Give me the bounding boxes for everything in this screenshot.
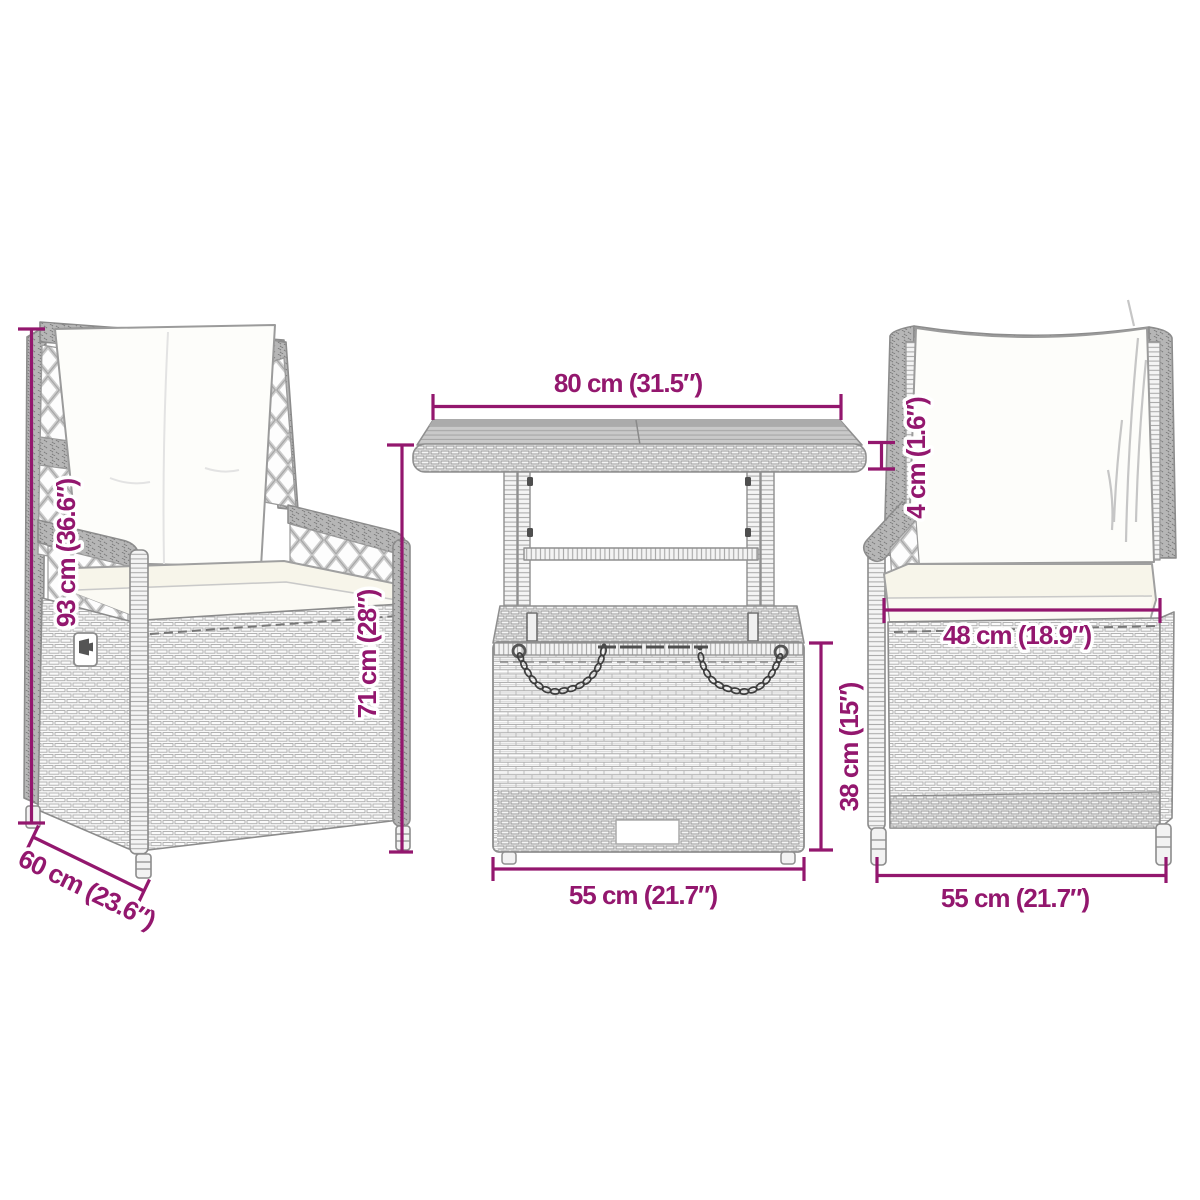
svg-text:48 cm (18.9″): 48 cm (18.9″) <box>943 620 1092 650</box>
svg-text:71 cm (28″): 71 cm (28″) <box>352 589 382 718</box>
svg-text:4 cm (1.6″): 4 cm (1.6″) <box>901 397 931 519</box>
svg-text:55 cm (21.7″): 55 cm (21.7″) <box>941 883 1090 913</box>
svg-text:38 cm (15″): 38 cm (15″) <box>834 682 864 811</box>
svg-text:93 cm (36.6″): 93 cm (36.6″) <box>51 479 81 628</box>
svg-text:80 cm (31.5″): 80 cm (31.5″) <box>554 368 703 398</box>
svg-text:55 cm (21.7″): 55 cm (21.7″) <box>569 880 718 910</box>
